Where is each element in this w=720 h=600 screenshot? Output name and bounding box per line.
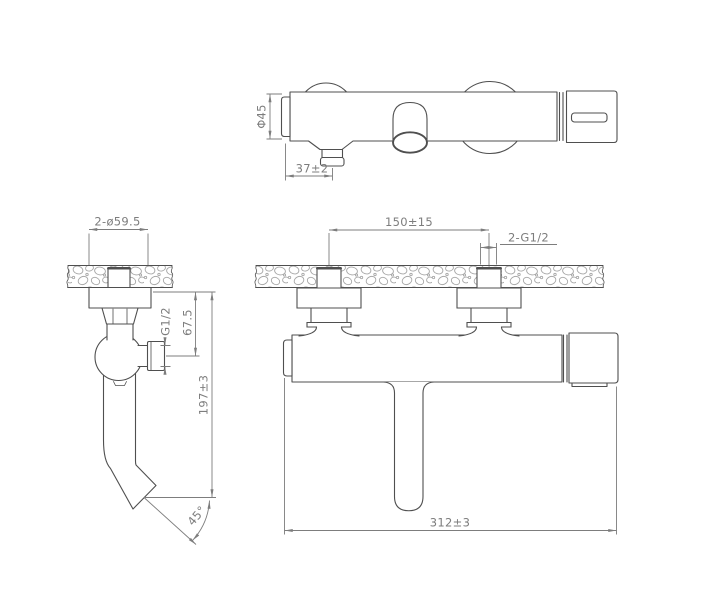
handle-separator-front [564, 335, 568, 382]
dim-label-spout-offset: 37±2 [296, 162, 329, 176]
dim-label-body-diameter: Φ45 [255, 104, 269, 129]
dim-label-spout-drop: 197±3 [197, 375, 211, 415]
side-view: 2-ø59.5 G1/2 67.5 197±3 45° [67, 215, 216, 545]
dim-label-spout-angle: 45° [184, 503, 208, 528]
hex-nut [102, 308, 138, 324]
top-view: Φ45 37±2 [255, 82, 618, 181]
handle-separator-ring [560, 93, 564, 141]
handle-grip-slot [572, 113, 608, 122]
wall-nipple-side [108, 268, 130, 288]
escutcheon-side [89, 288, 151, 309]
dim-label-outlet-thread: G1/2 [159, 307, 173, 336]
faucet-body-front [292, 335, 562, 382]
spout-front [384, 382, 435, 511]
connector-fill [107, 324, 133, 340]
handle-lip [572, 383, 607, 387]
end-cap-front [284, 340, 293, 376]
dim-label-overall-width: 312±3 [430, 516, 470, 530]
dim-label-inlet-centers: 150±15 [385, 215, 433, 229]
valve-body-side [95, 334, 142, 381]
faucet-drawing-svg: Φ45 37±2 [0, 0, 720, 600]
dim-label-escutcheon-diameter: 2-ø59.5 [94, 215, 140, 229]
end-cap [282, 97, 291, 137]
wall-section-front [256, 266, 603, 288]
outlet-neck-fill [138, 346, 147, 367]
aerator-neck [322, 150, 343, 158]
dim-label-outlet-height: 67.5 [181, 309, 195, 336]
technical-drawing-page: Φ45 37±2 [0, 0, 720, 600]
dim-label-inlet-thread: 2-G1/2 [508, 231, 549, 245]
diverter-cap [393, 132, 427, 152]
temperature-handle-front [569, 333, 618, 383]
front-view: 150±15 2-G1/2 312±3 [255, 215, 618, 535]
